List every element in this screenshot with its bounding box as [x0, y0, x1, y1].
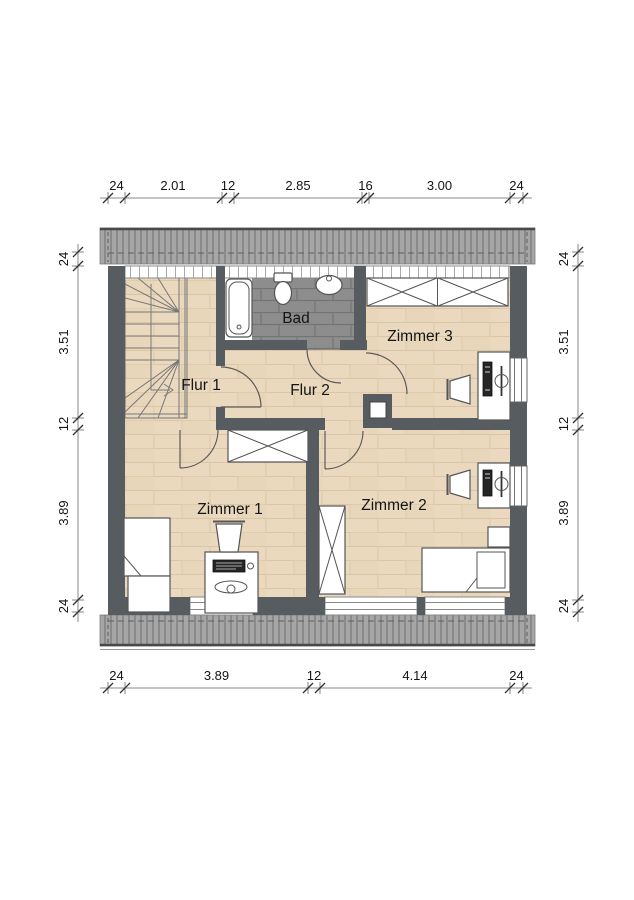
desk-zimmer3-icon	[478, 352, 510, 420]
dim-right-0: 24	[556, 252, 571, 266]
dim-top-6: 24	[509, 178, 523, 193]
dim-bottom-4: 24	[509, 668, 523, 683]
nightstand-zimmer2-icon	[488, 527, 510, 547]
room-label-flur1: Flur 1	[181, 377, 221, 394]
toilet-icon	[274, 273, 292, 305]
desk-zimmer1-icon	[205, 552, 258, 613]
dim-right-4: 24	[556, 599, 571, 613]
dimension-line-right: 24 3.51 12 3.89 24	[556, 244, 584, 622]
dim-left-1: 3.51	[56, 329, 71, 354]
dim-bottom-1: 3.89	[204, 668, 229, 683]
dim-top-1: 2.01	[160, 178, 185, 193]
roof-hatch-top	[100, 228, 535, 264]
dim-top-0: 24	[109, 178, 123, 193]
wardrobe-zimmer1-icon	[228, 430, 308, 462]
dim-left-0: 24	[56, 252, 71, 266]
desk-zimmer2-icon	[478, 463, 510, 508]
dim-right-1: 3.51	[556, 329, 571, 354]
room-label-zimmer3: Zimmer 3	[387, 328, 452, 345]
dim-left-2: 12	[56, 417, 71, 431]
room-label-zimmer2: Zimmer 2	[361, 497, 426, 514]
wardrobe-zimmer2-icon	[319, 506, 345, 594]
dim-top-3: 2.85	[285, 178, 310, 193]
dim-bottom-2: 12	[307, 668, 321, 683]
top-knee-wall	[125, 266, 510, 278]
dim-bottom-3: 4.14	[402, 668, 427, 683]
dim-top-5: 3.00	[427, 178, 452, 193]
dim-right-3: 3.89	[556, 500, 571, 525]
dim-top-2: 12	[221, 178, 235, 193]
floor-plan-page: Bad Flur 1 Flur 2 Zimmer 3 Zimmer 1 Zimm…	[0, 0, 634, 900]
bed-zimmer2-icon	[422, 548, 510, 592]
dim-left-3: 3.89	[56, 500, 71, 525]
roof-hatch-bottom	[100, 615, 535, 650]
dimension-line-left: 24 3.51 12 3.89 24	[56, 244, 84, 622]
dim-right-2: 12	[556, 417, 571, 431]
room-label-flur2: Flur 2	[290, 382, 330, 399]
bed-zimmer1-icon	[124, 518, 170, 612]
bathtub-icon	[226, 279, 252, 337]
window-zimmer2	[510, 466, 527, 506]
dim-bottom-0: 24	[109, 668, 123, 683]
dim-left-4: 24	[56, 599, 71, 613]
dim-top-4: 16	[358, 178, 372, 193]
dimension-line-top: 24 2.01 12 2.85 16 3.00 24	[100, 178, 532, 204]
floor-plan: Bad Flur 1 Flur 2 Zimmer 3 Zimmer 1 Zimm…	[0, 0, 634, 900]
room-label-zimmer1: Zimmer 1	[197, 501, 262, 518]
chimney-flue	[370, 402, 386, 418]
wardrobe-zimmer3-icon	[367, 278, 508, 306]
sink-icon	[316, 276, 342, 295]
window-zimmer3	[510, 358, 527, 402]
room-label-bad: Bad	[282, 310, 310, 327]
dimension-line-bottom: 24 3.89 12 4.14 24	[100, 668, 532, 694]
